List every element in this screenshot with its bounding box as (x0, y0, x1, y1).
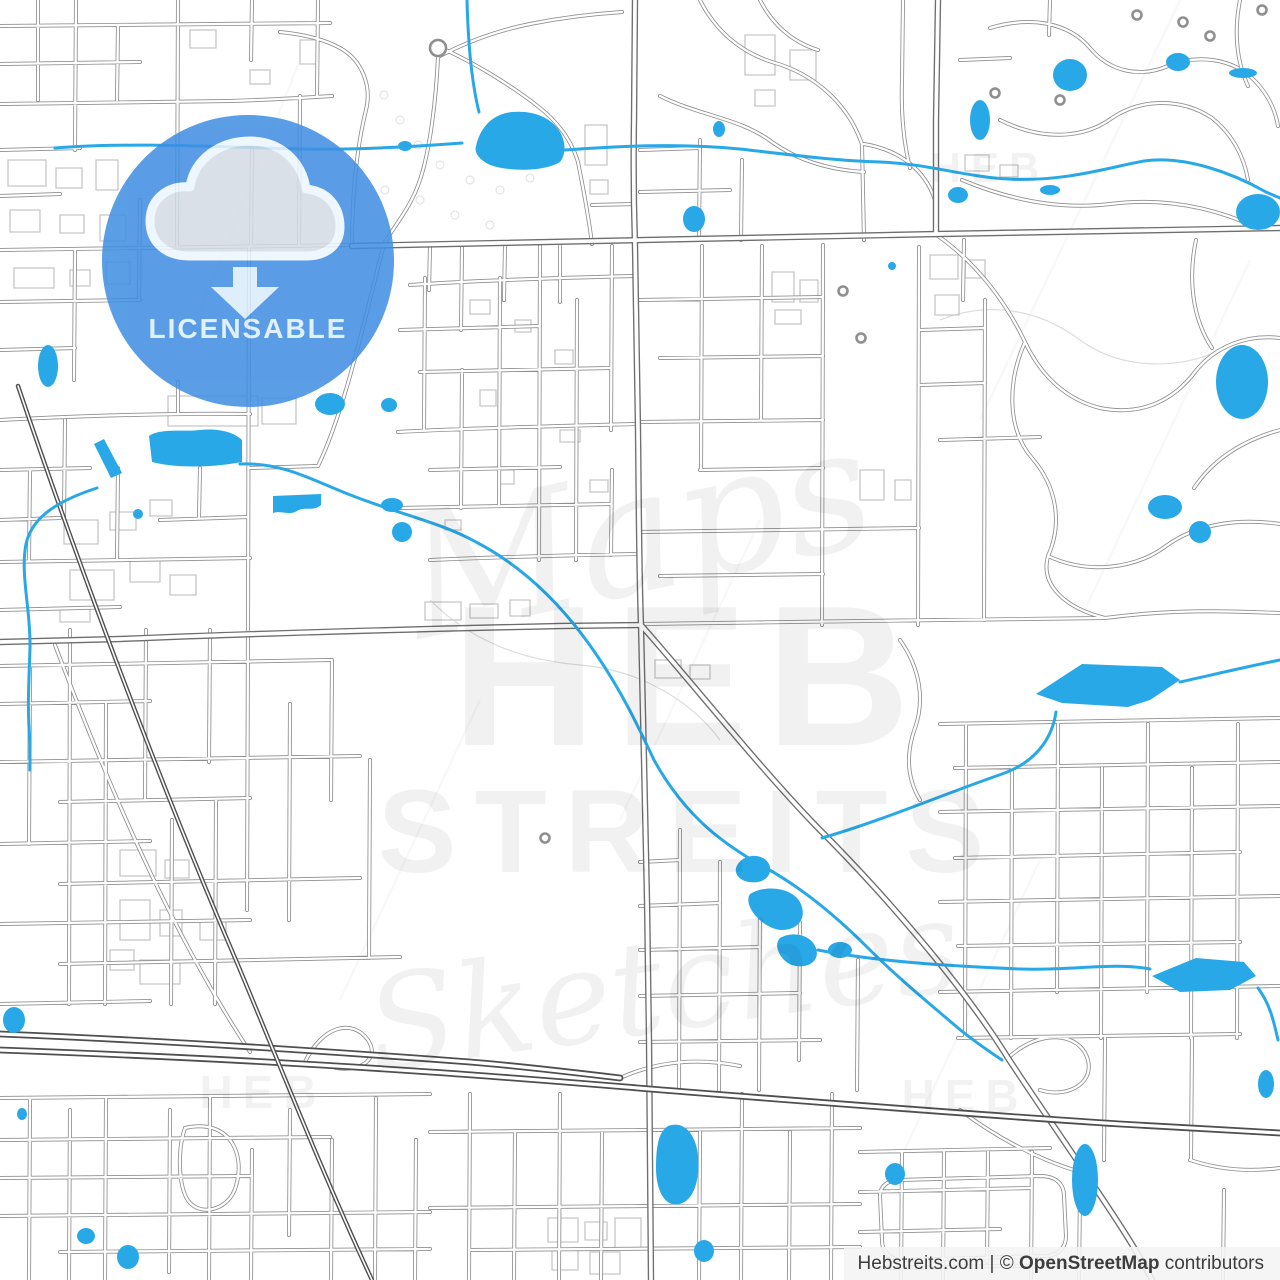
attribution-bar: Hebstreits.com | © OpenStreetMap contrib… (844, 1247, 1280, 1280)
cloud-shape (150, 141, 340, 256)
attribution-suffix: contributors (1165, 1253, 1264, 1275)
watermark-tile: HEB (901, 1070, 1028, 1122)
watermark-tile: HEB (931, 144, 1050, 191)
badge-label: LICENSABLE (102, 313, 394, 345)
attribution-osm-link[interactable]: OpenStreetMap (1019, 1253, 1159, 1275)
map-screenshot: Maps HEB STREITS Sketches HEB HEB HEB LI… (0, 0, 1280, 1280)
attribution-copyright: © (1000, 1253, 1014, 1275)
attribution-site-link[interactable]: Hebstreits.com (858, 1253, 985, 1275)
cloud-download-icon (102, 115, 394, 407)
licensable-badge: LICENSABLE (102, 115, 394, 407)
watermark-tile: HEB (199, 1066, 326, 1118)
watermark-title-line1: HEB (452, 565, 928, 788)
download-arrow (211, 267, 279, 319)
